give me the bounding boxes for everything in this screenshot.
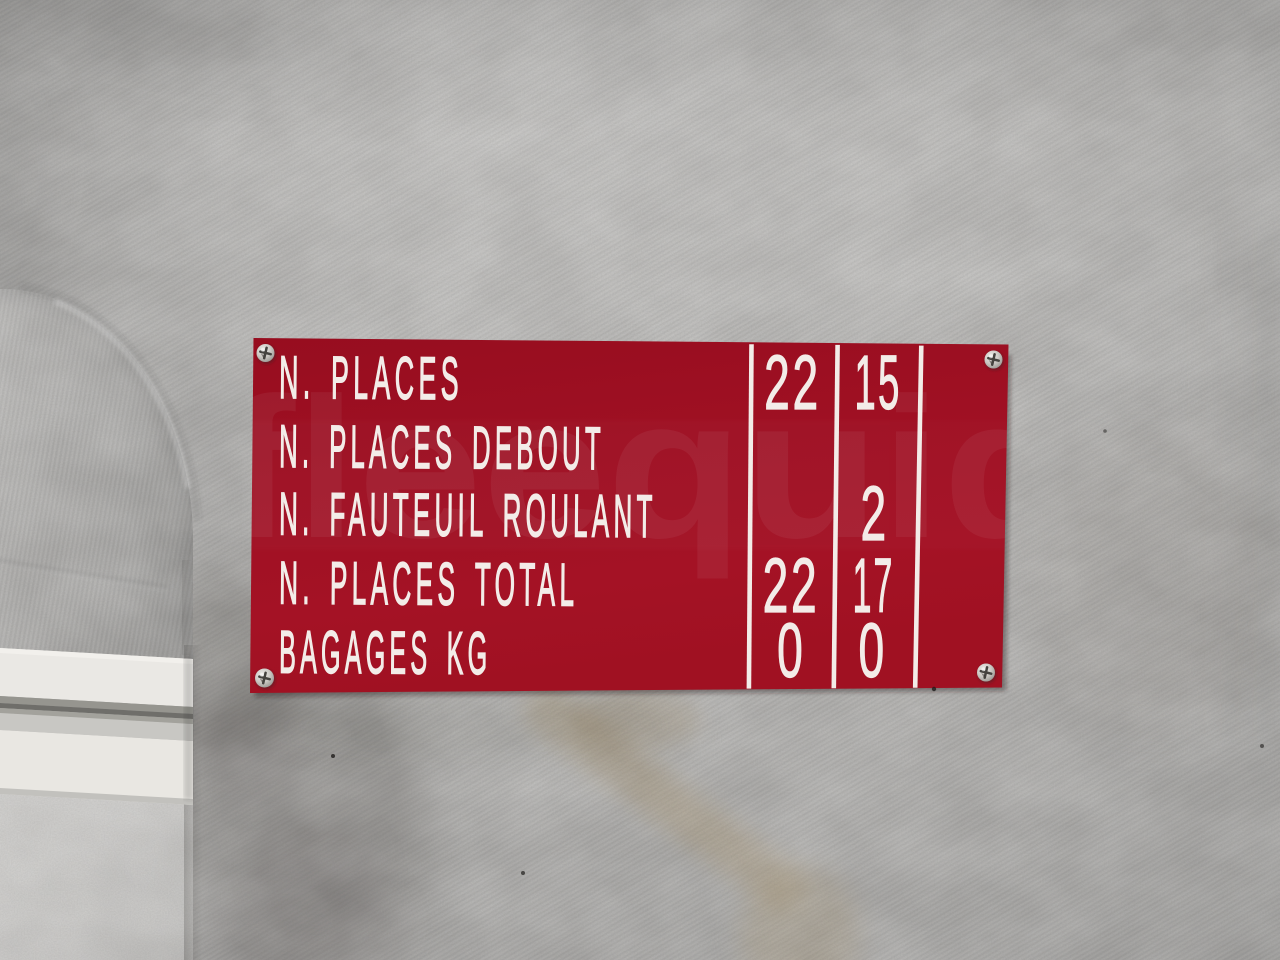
svg-text:0: 0: [777, 609, 803, 694]
svg-text:N. PLACES TOTAL: N. PLACES TOTAL: [279, 549, 579, 619]
svg-text:15: 15: [854, 339, 901, 425]
svg-text:N. PLACES DEBOUT: N. PLACES DEBOUT: [279, 412, 605, 482]
svg-text:22: 22: [764, 341, 821, 426]
svg-text:BAGAGES KG: BAGAGES KG: [279, 618, 492, 687]
svg-text:N. FAUTEUIL ROULANT: N. FAUTEUIL ROULANT: [279, 480, 657, 550]
svg-text:N. PLACES: N. PLACES: [279, 344, 463, 413]
svg-text:0: 0: [859, 609, 885, 694]
